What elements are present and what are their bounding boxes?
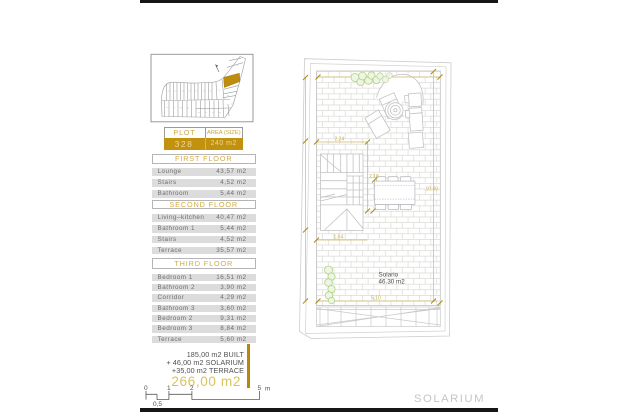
svg-text:0,5: 0,5 <box>153 401 162 407</box>
svg-text:5: 5 <box>258 385 262 392</box>
svg-text:46.30 m2: 46.30 m2 <box>379 279 406 286</box>
svg-text:2: 2 <box>190 385 194 392</box>
svg-text:1.84: 1.84 <box>334 235 344 241</box>
svg-text:2.24: 2.24 <box>335 137 345 143</box>
svg-text:1: 1 <box>167 385 171 392</box>
svg-text:0: 0 <box>144 385 148 392</box>
svg-text:2.18: 2.18 <box>369 174 379 180</box>
svg-text:5.10: 5.10 <box>371 296 381 302</box>
svg-text:Solario: Solario <box>379 272 399 279</box>
svg-text:m: m <box>265 386 270 393</box>
svg-text:10.30: 10.30 <box>426 187 439 193</box>
